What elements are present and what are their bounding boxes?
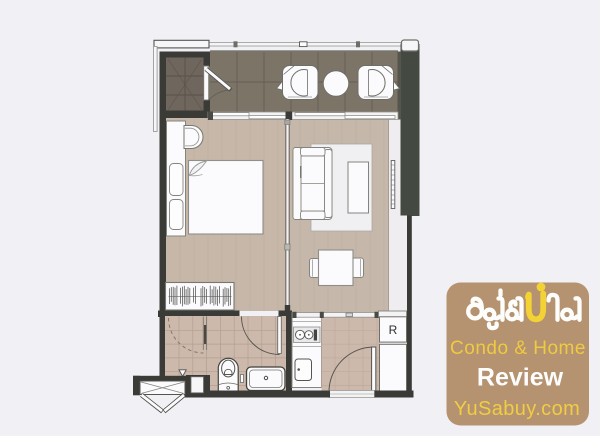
svg-text:Condo & Home: Condo & Home [450, 338, 586, 359]
svg-text:YuSabuy.com: YuSabuy.com [454, 398, 580, 420]
svg-text:Review: Review [477, 364, 564, 392]
svg-text:R: R [389, 323, 398, 337]
